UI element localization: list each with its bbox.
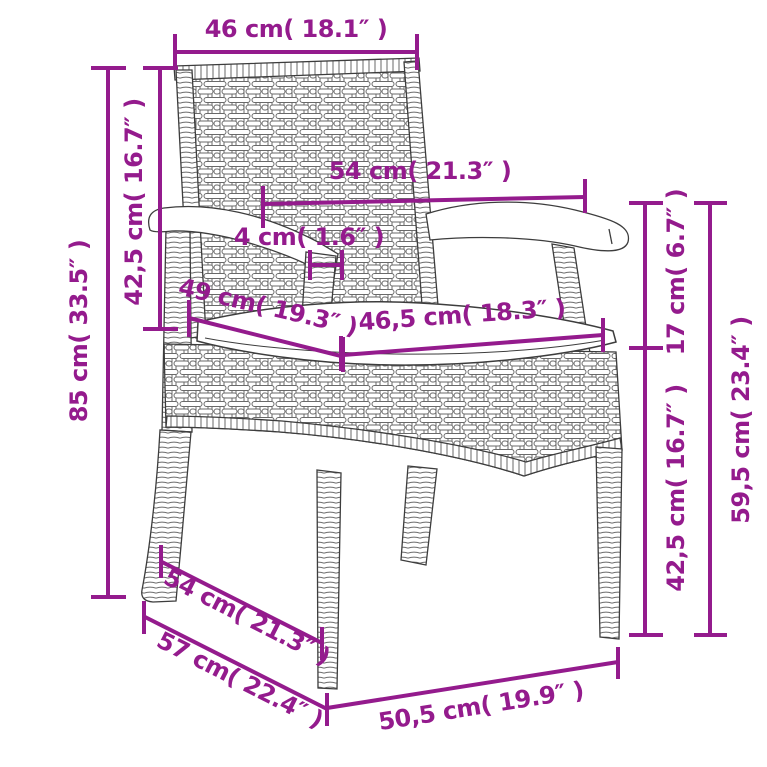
dim-label-armrest-post: 4 cm( 1.6″ ) xyxy=(234,225,384,249)
dim-label-overall-height: 85 cm( 33.5″ ) xyxy=(67,240,91,423)
dim-line-arm-above-seat xyxy=(629,203,663,348)
dimension-diagram: 46 cm( 18.1″ ) 85 cm( 33.5″ ) 42,5 cm( 1… xyxy=(0,0,767,767)
dim-line-armrest-height xyxy=(694,203,727,635)
dim-label-seat-height: 42,5 cm( 16.7″ ) xyxy=(664,384,688,591)
chair-leg-back xyxy=(401,466,437,565)
dim-label-backrest-height: 42,5 cm( 16.7″ ) xyxy=(122,98,146,305)
chair-leg-right xyxy=(596,447,622,639)
dim-label-arm-above-seat: 17 cm( 6.7″ ) xyxy=(664,189,688,355)
dim-label-back-width: 46 cm( 18.1″ ) xyxy=(205,17,388,41)
dim-label-armrest-height: 59,5 cm( 23.4″ ) xyxy=(729,316,753,523)
dim-line-seat-height xyxy=(629,348,663,635)
chair-illustration xyxy=(0,0,767,767)
dim-label-armrest-span: 54 cm( 21.3″ ) xyxy=(329,159,512,183)
chair-right-armrest xyxy=(426,202,629,251)
